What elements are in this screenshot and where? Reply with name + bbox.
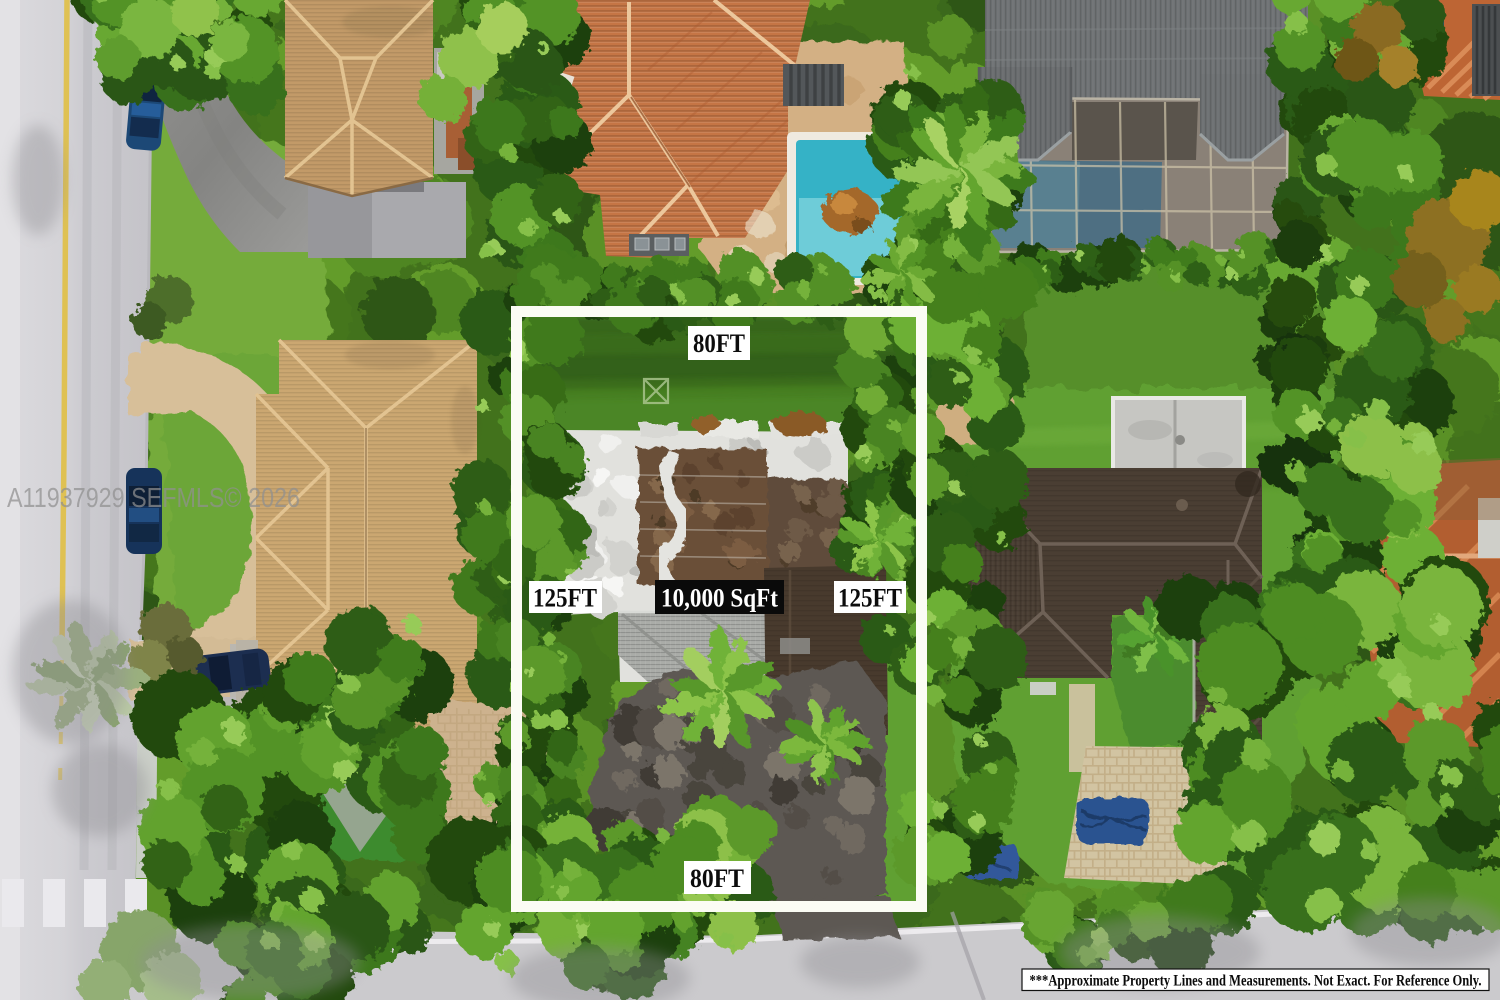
svg-text:80FT: 80FT <box>690 864 744 893</box>
svg-text:10,000 SqFt: 10,000 SqFt <box>661 584 778 613</box>
svg-text:80FT: 80FT <box>693 329 745 358</box>
svg-text:***Approximate Property Lines: ***Approximate Property Lines and Measur… <box>1030 973 1482 990</box>
svg-text:125FT: 125FT <box>838 584 902 613</box>
svg-text:125FT: 125FT <box>533 584 597 613</box>
svg-text:A11937929 SEFMLS© 2026: A11937929 SEFMLS© 2026 <box>7 482 300 513</box>
